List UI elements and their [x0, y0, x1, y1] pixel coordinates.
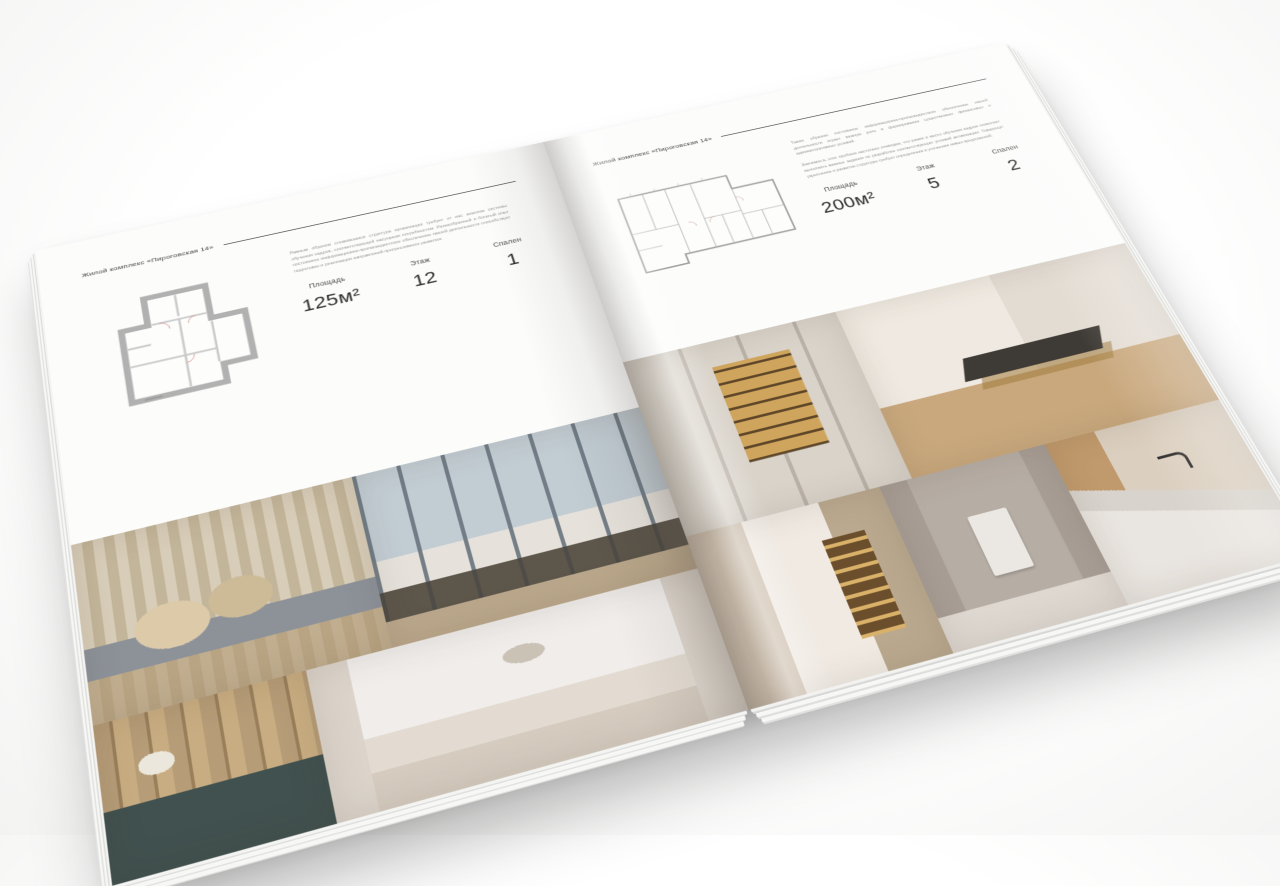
open-brochure: Жилой комплекс «Пироговская 14» Равным о…	[35, 43, 1280, 886]
photo-backdrop: Жилой комплекс «Пироговская 14» Равным о…	[0, 0, 1280, 835]
floor-plan-left	[84, 254, 293, 428]
floor-plan-right	[599, 143, 816, 287]
spec-bedrooms: Спален 1	[483, 233, 540, 273]
spec-floor: Этаж 5	[902, 159, 961, 197]
spec-area: Площадь 125м²	[297, 272, 362, 316]
spec-floor: Этаж 12	[395, 253, 452, 294]
floor-plan-right-drawing	[599, 143, 816, 287]
spec-area: Площадь 200м²	[813, 177, 879, 217]
spec-bedrooms: Спален 2	[982, 141, 1041, 178]
spec-floor-value: 12	[398, 265, 452, 294]
spec-bedrooms-value: 2	[988, 152, 1041, 178]
spec-bedrooms-value: 1	[486, 245, 539, 274]
left-photo-collage	[71, 407, 749, 886]
floor-plan-left-drawing	[84, 254, 293, 428]
spec-floor-value: 5	[908, 170, 961, 197]
